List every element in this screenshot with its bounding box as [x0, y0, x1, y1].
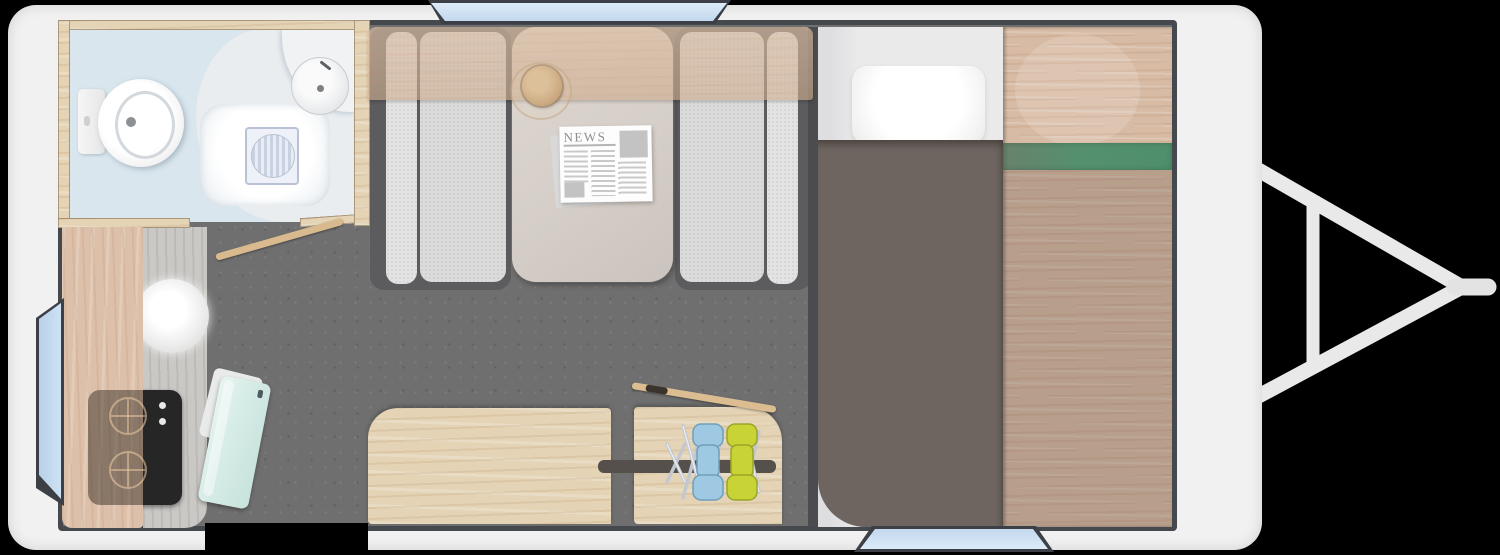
newspaper-ad-block — [564, 182, 584, 197]
newspaper-masthead: NEWS — [563, 130, 615, 147]
bathroom-wall-left — [58, 20, 70, 228]
bed-board-sheen — [1015, 34, 1140, 146]
washbasin — [291, 57, 349, 115]
duvet — [818, 140, 1003, 527]
overhead-locker — [368, 27, 813, 100]
burner-icon — [109, 451, 147, 489]
window-top — [430, 3, 729, 21]
burner-icon — [109, 397, 147, 435]
toilet-bowl-inner — [115, 91, 175, 159]
basin-drain-dot — [317, 85, 324, 92]
folding-chair-blue — [693, 424, 723, 500]
door-handle — [257, 390, 263, 399]
bed-board-lower-shade — [1003, 170, 1172, 527]
newspaper-photo-block — [619, 130, 647, 157]
window-left — [39, 301, 61, 501]
bathroom-wall-top — [58, 20, 370, 30]
window-bottom — [858, 529, 1050, 549]
newspaper-column — [591, 150, 616, 196]
floor-drain — [245, 127, 299, 185]
newspaper: NEWS — [559, 125, 652, 203]
caravan-floorplan: NEWS — [0, 0, 1500, 555]
bed-board-green-stripe — [1003, 143, 1172, 170]
drain-grate — [251, 134, 295, 178]
kitchen-sink — [135, 279, 209, 353]
folding-chair-yellow — [727, 424, 757, 500]
newspaper-column — [618, 161, 647, 195]
coffee-cup — [522, 66, 562, 106]
sideboard-counter — [368, 408, 611, 524]
newspaper-column — [564, 150, 589, 182]
hob-knob — [159, 418, 166, 425]
pillow — [852, 66, 985, 144]
hob-knob — [159, 402, 166, 409]
entry-doorway-opening — [205, 523, 368, 551]
toilet-bowl — [98, 79, 184, 167]
folding-chairs — [645, 412, 785, 512]
toilet-drain-dot — [126, 117, 136, 127]
flush-button — [84, 116, 90, 126]
